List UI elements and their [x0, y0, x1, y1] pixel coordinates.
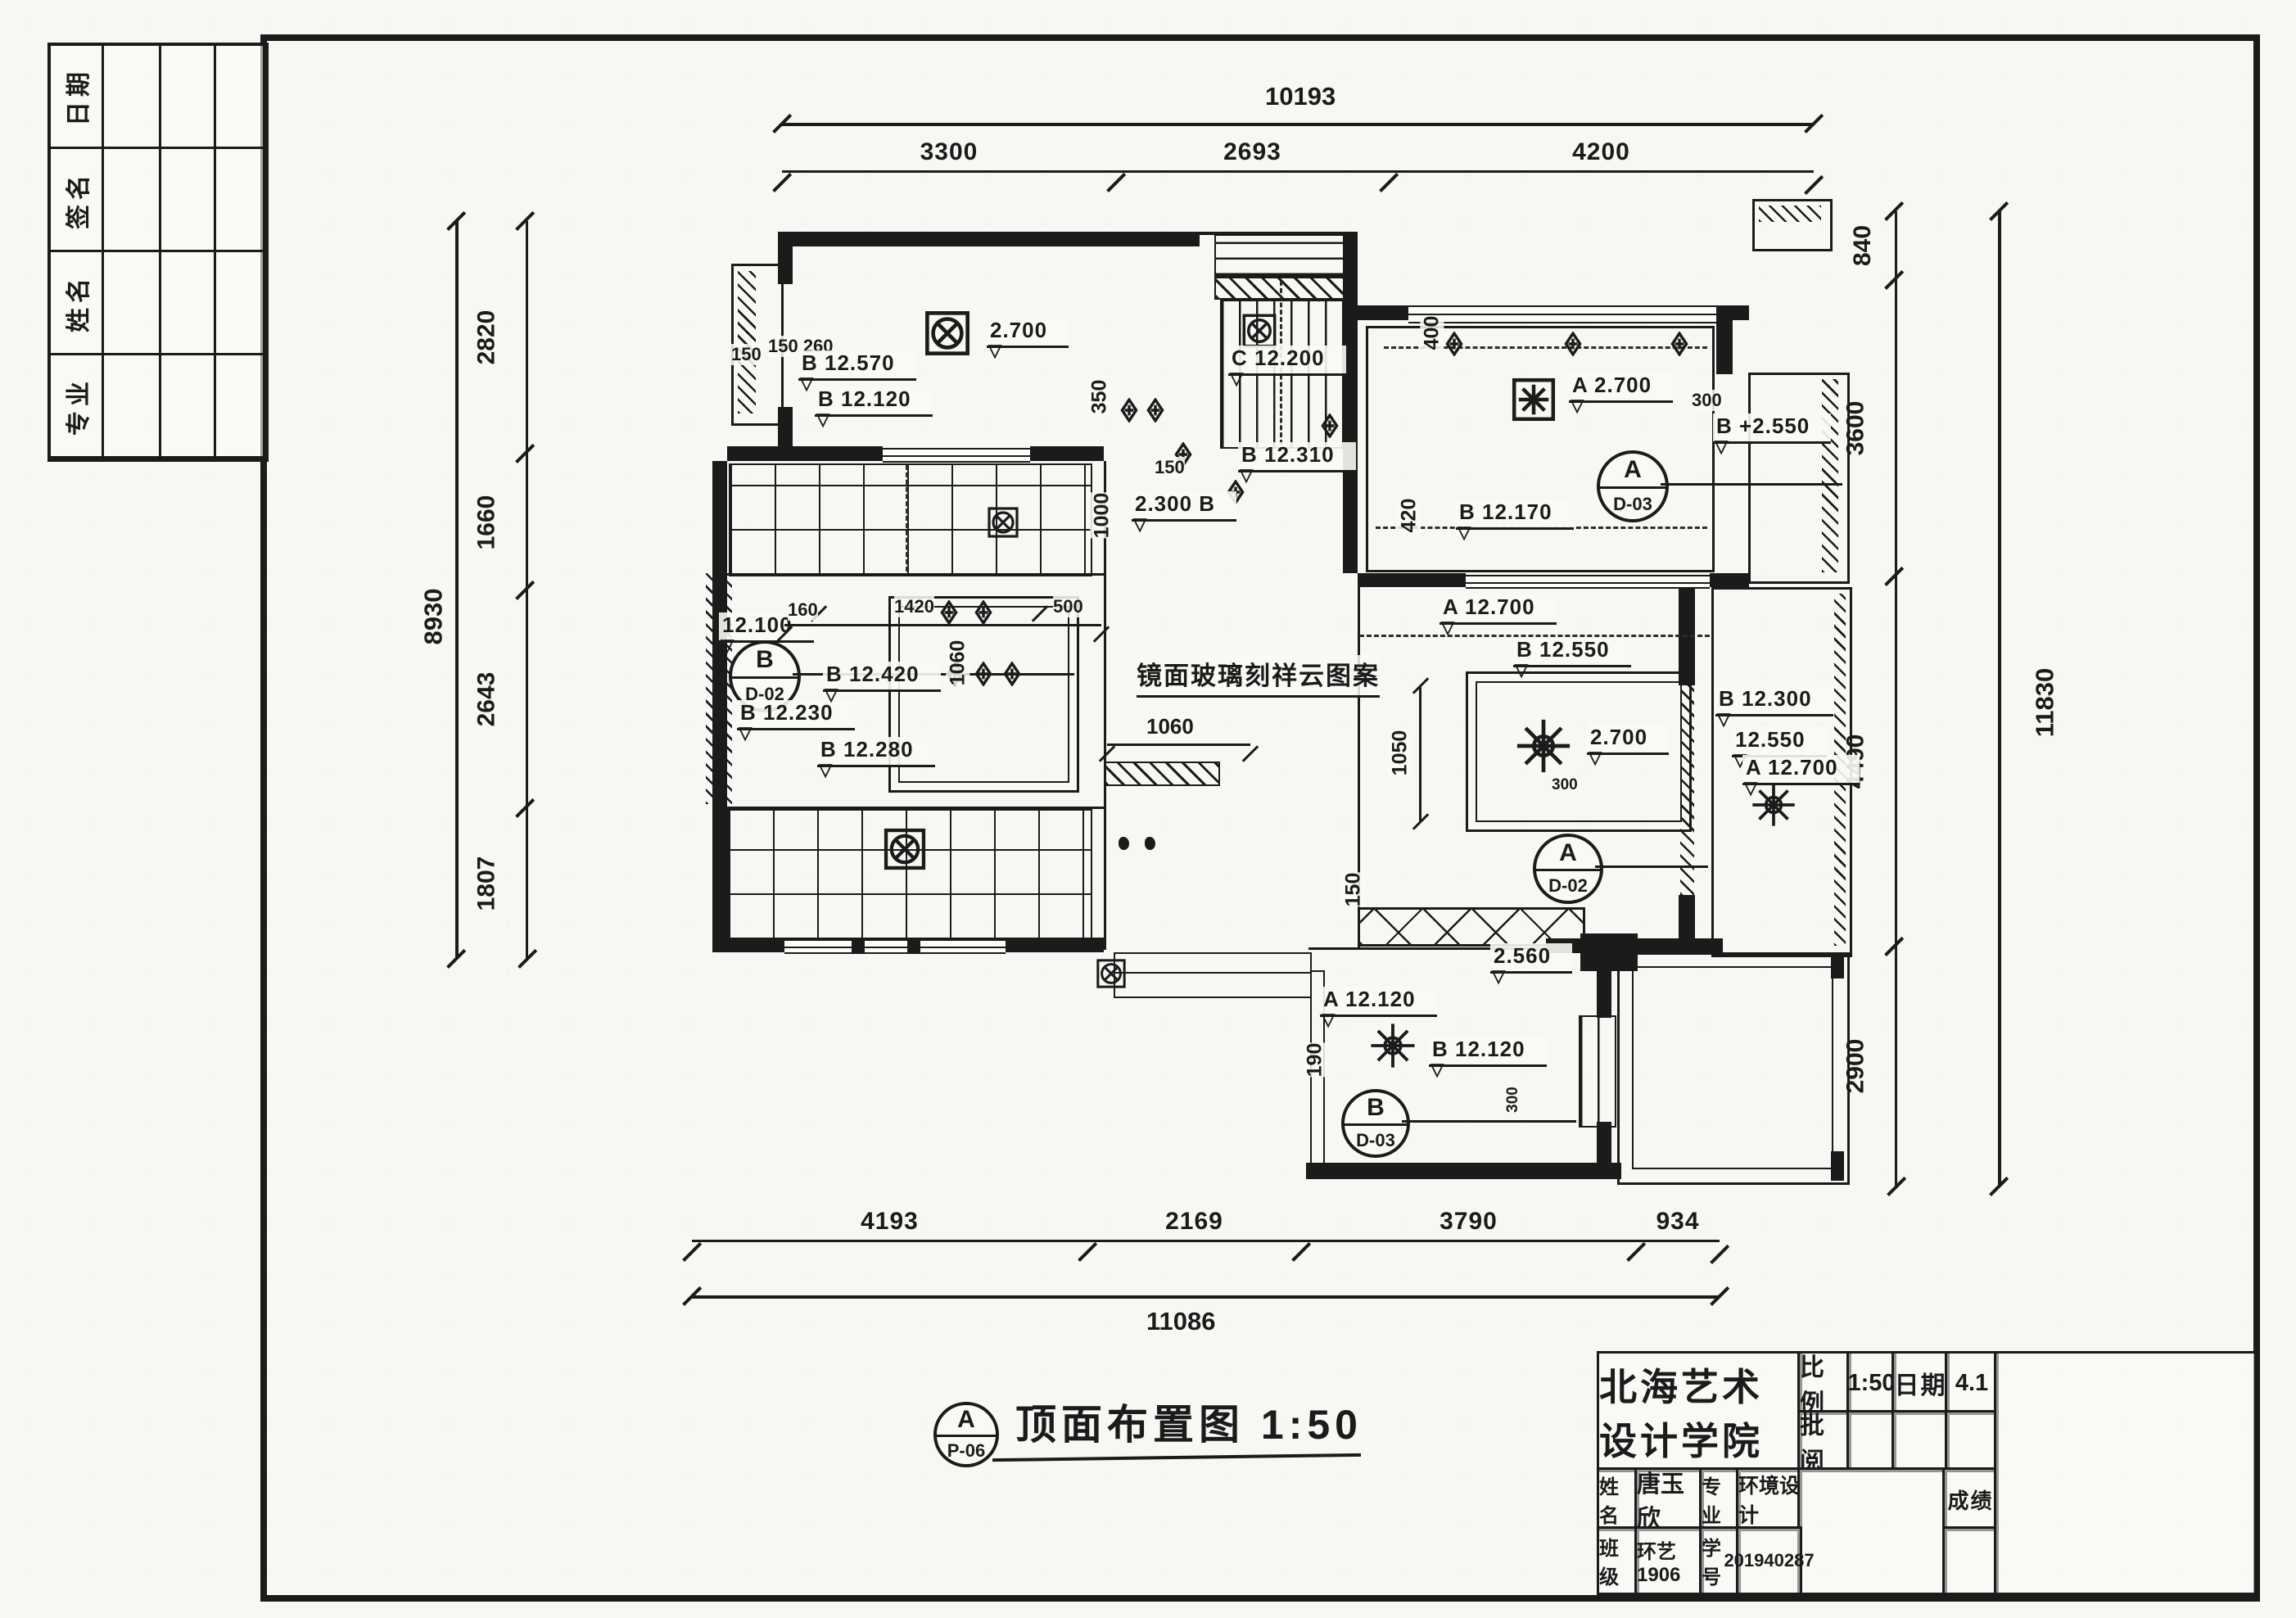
title-block: 北海艺术设计学院 比例 1:50 日期 4.1 批阅 姓名 唐玉欣 专业 环境设… [1597, 1351, 2252, 1590]
class-label: 班级 [1597, 1526, 1639, 1595]
dim-overall-top-label: 10193 [1265, 82, 1336, 111]
dim-segment: 2643 [488, 590, 528, 808]
terrace-inner-line [1632, 966, 1833, 1169]
dim-segment: 1807 [488, 808, 528, 958]
sliding-door-track [1466, 575, 1710, 589]
dim-text-vertical: 1060 [946, 640, 969, 686]
revision-cell [104, 46, 161, 149]
dim-label: 2169 [1165, 1208, 1223, 1236]
revision-cell [161, 46, 216, 149]
dim-chain-left: 2820 1660 2643 1807 [488, 221, 528, 958]
dim-segment: 934 [1636, 1202, 1720, 1242]
level-annotation: A 12.700 [1742, 755, 1860, 785]
dim-text-vertical: 190 [1303, 1043, 1327, 1078]
revision-cell [216, 355, 265, 459]
empty-cell [1891, 1410, 1950, 1472]
downlight-icon [1445, 332, 1463, 356]
dim-segment: 3790 [1301, 1202, 1636, 1242]
dim-text-vertical: 420 [1397, 499, 1421, 533]
bubble-code: P-06 [937, 1437, 996, 1464]
school-name: 北海艺术设计学院 [1597, 1351, 1802, 1472]
dim-line [784, 624, 1101, 626]
level-annotation: B 12.120 [815, 386, 933, 417]
revision-label-major: 专业 [51, 355, 104, 459]
downlight-icon [940, 600, 958, 625]
dim-text: 150 [731, 344, 762, 365]
downlight-icon [1564, 332, 1582, 356]
ceiling-lamp-icon [924, 310, 971, 357]
level-annotation: B 12.310 [1238, 442, 1356, 472]
switch-symbol [1119, 837, 1129, 850]
downlight-icon [1146, 398, 1164, 423]
level-annotation: A 12.120 [1320, 987, 1437, 1017]
dim-label: 1807 [473, 856, 501, 911]
wall-segment [1710, 573, 1749, 587]
wall-segment [778, 232, 1200, 246]
dim-label: 840 [1849, 225, 1877, 266]
dim-segment: 2900 [1857, 947, 1897, 1186]
detail-bubble-d03: A D-03 [1597, 450, 1669, 522]
revision-cell [161, 355, 216, 459]
sliding-door-track [883, 448, 1030, 463]
dim-label: 4200 [1572, 138, 1630, 166]
revision-label-signature: 签名 [51, 149, 104, 252]
dim-segment: 1660 [488, 454, 528, 590]
level-annotation: B 12.300 [1715, 686, 1833, 716]
centerline [906, 465, 911, 572]
hatched-strip [1104, 762, 1220, 786]
wall-segment [727, 446, 883, 461]
dim-text-vertical: 1000 [1090, 493, 1114, 539]
dim-segment: 2820 [488, 221, 528, 454]
name-label: 姓名 [1597, 1467, 1639, 1531]
revision-label-text: 姓名 [58, 273, 94, 332]
dim-chain-top: 3300 2693 4200 [782, 133, 1814, 173]
bay-window-glazing [1759, 206, 1821, 222]
dim-overall-left-label: 8930 [418, 589, 448, 645]
date-value: 4.1 [1945, 1351, 1999, 1415]
ceiling-fan-icon [1515, 717, 1572, 775]
wall-segment [1306, 1163, 1621, 1179]
dim-segment: 840 [1857, 211, 1897, 280]
revision-label-text: 日期 [58, 67, 94, 126]
revision-cell [161, 149, 216, 252]
wardrobe-x-band [1358, 907, 1585, 947]
dim-text: 150 [1155, 457, 1185, 478]
level-annotation: 12.550 [1732, 727, 1827, 757]
revision-label-text: 签名 [58, 170, 94, 229]
dim-text: 160 [788, 599, 818, 621]
level-annotation: 2.700 [987, 318, 1069, 348]
level-annotation: A 2.700 [1569, 373, 1673, 403]
ceiling-lamp-icon [1241, 313, 1277, 349]
wall-segment [1030, 446, 1104, 461]
window-strip [784, 939, 1006, 954]
date-label: 日期 [1891, 1351, 1950, 1415]
balcony-glazing [1822, 379, 1838, 572]
leader-line [1661, 483, 1842, 486]
stair-flight-upper [1214, 234, 1346, 277]
dim-overall-bottom-label: 11086 [1146, 1307, 1216, 1336]
ceiling-lamp-icon [1096, 958, 1127, 989]
class-value: 环艺1906 [1634, 1526, 1704, 1595]
dim-text: 1060 [1146, 714, 1194, 739]
level-annotation: C 12.200 [1228, 346, 1346, 376]
bubble-letter: B [732, 644, 798, 679]
major-value: 环境设计 [1736, 1467, 1802, 1531]
revision-cell [216, 46, 265, 149]
dim-label: 2820 [473, 310, 501, 365]
window-glazing [706, 573, 732, 804]
review-label: 批阅 [1797, 1410, 1851, 1472]
wall-segment [1716, 305, 1749, 320]
wall-segment [1597, 1122, 1611, 1167]
revision-label-text: 专业 [58, 377, 94, 436]
switch-symbol [1145, 837, 1155, 850]
grade-value-cell [1942, 1526, 1999, 1595]
revision-cell [104, 252, 161, 355]
leader-line [1595, 865, 1708, 868]
level-annotation: 2.300 B [1132, 491, 1236, 522]
ceiling-border [1366, 326, 1715, 572]
detail-bubble-d03-bedroom: B D-03 [1341, 1089, 1410, 1158]
dim-label: 2643 [473, 672, 501, 727]
dim-text-vertical: 350 [1087, 380, 1111, 414]
revision-cell [216, 149, 265, 252]
dim-label: 4193 [861, 1208, 919, 1236]
revision-cell [104, 149, 161, 252]
downlight-icon [1120, 398, 1138, 423]
dim-label: 2693 [1223, 138, 1281, 166]
grade-label: 成绩 [1942, 1467, 1999, 1531]
name-value: 唐玉欣 [1634, 1467, 1704, 1531]
bubble-letter: A [1536, 837, 1600, 871]
drawing-title: 顶面布置图 1:50 [1015, 1392, 1363, 1451]
dim-overall-right-label: 11830 [2030, 668, 2059, 738]
dim-segment: 4193 [692, 1202, 1087, 1242]
downlight-icon [974, 600, 992, 625]
scale-value: 1:50 [1846, 1351, 1896, 1415]
dim-overall-bottom [692, 1295, 1720, 1299]
note-text: 镜面玻璃刻祥云图案 [1137, 655, 1380, 698]
level-annotation: B +2.550 [1713, 414, 1831, 444]
level-annotation: B 12.420 [823, 662, 941, 692]
bubble-code: D-02 [1536, 871, 1600, 901]
bubble-code: D-03 [1600, 489, 1666, 519]
dim-overall-right [1998, 211, 2001, 1186]
dim-label: 1660 [473, 495, 501, 549]
empty-cell [1945, 1410, 1999, 1472]
dim-chain-bottom: 4193 2169 3790 934 [692, 1202, 1720, 1242]
wall-segment [1358, 573, 1466, 587]
window-triple-line [1408, 305, 1716, 323]
ceiling-fan-icon [1369, 1022, 1417, 1069]
wall-segment [1716, 320, 1733, 374]
level-annotation: 2.560 [1490, 943, 1572, 974]
level-annotation: B 12.170 [1456, 499, 1574, 530]
dim-label: 3300 [920, 138, 979, 166]
downlight-icon [1321, 414, 1339, 438]
dim-text-vertical: 300 [1504, 1087, 1522, 1113]
empty-cell [1797, 1467, 1947, 1595]
dim-text-vertical: 400 [1420, 316, 1444, 350]
dim-line [1107, 743, 1250, 746]
dim-text: 300 [1552, 776, 1578, 794]
star-lamp-icon [1511, 377, 1557, 423]
sid-value: 201940287 [1736, 1526, 1802, 1595]
revision-cell [161, 252, 216, 355]
dim-line [1419, 686, 1421, 821]
downlight-icon [1670, 332, 1688, 356]
level-annotation: B 12.570 [798, 350, 916, 381]
dim-segment: 2693 [1116, 133, 1389, 173]
cabinet [1114, 972, 1312, 998]
empty-cell [1994, 1351, 2257, 1595]
leader-line [1402, 1120, 1576, 1123]
dim-segment: 3300 [782, 133, 1116, 173]
dim-overall-left [455, 221, 459, 958]
bubble-code: D-03 [1345, 1126, 1407, 1155]
level-annotation: B 12.550 [1513, 637, 1631, 667]
dim-segment: 4490 [1857, 576, 1897, 947]
cabinet [1114, 952, 1312, 974]
major-label: 专业 [1699, 1467, 1741, 1531]
dim-segment: 2169 [1087, 1202, 1301, 1242]
revision-cell [216, 252, 265, 355]
level-annotation: 2.700 [1587, 725, 1669, 755]
dim-text: 1420 [894, 596, 934, 617]
dim-text: 500 [1053, 596, 1083, 617]
bubble-letter: A [937, 1405, 996, 1437]
caption-bubble: A P-06 [933, 1402, 999, 1467]
dim-segment: 3600 [1857, 280, 1897, 576]
level-annotation: B 12.280 [817, 737, 935, 767]
revision-label-date: 日期 [51, 46, 104, 149]
curtain-strip [1579, 1015, 1616, 1128]
tile-ceiling-dining [729, 463, 1092, 576]
ceiling-lamp-icon [883, 827, 927, 871]
dim-text-vertical: 150 [1341, 873, 1365, 907]
wall-segment [1597, 970, 1611, 1018]
dim-segment: 4200 [1389, 133, 1814, 173]
level-annotation: A 12.700 [1440, 594, 1557, 625]
detail-bubble-d02-living: A D-02 [1533, 834, 1603, 904]
bubble-letter: A [1600, 454, 1666, 489]
revision-table: 日期 签名 姓名 专业 [47, 43, 269, 462]
ceiling-lamp-icon [987, 506, 1019, 539]
dim-text: 300 [1692, 390, 1722, 411]
dim-text-vertical: 1050 [1388, 730, 1412, 776]
dim-overall-top [782, 123, 1814, 126]
dim-label: 3790 [1440, 1208, 1498, 1236]
wall-segment [1358, 305, 1408, 320]
review-value-cell [1846, 1410, 1896, 1472]
dim-chain-right: 840 3600 4490 2900 [1857, 211, 1897, 1186]
revision-cell [104, 355, 161, 459]
window-glazing [738, 271, 756, 414]
scanned-ceiling-plan-sheet: { "caption": { "title": "顶面布置图 1:50", "b… [0, 0, 2296, 1618]
revision-label-name: 姓名 [51, 252, 104, 355]
dim-label: 934 [1656, 1208, 1699, 1236]
level-annotation: B 12.120 [1429, 1037, 1547, 1067]
bubble-letter: B [1345, 1092, 1407, 1126]
